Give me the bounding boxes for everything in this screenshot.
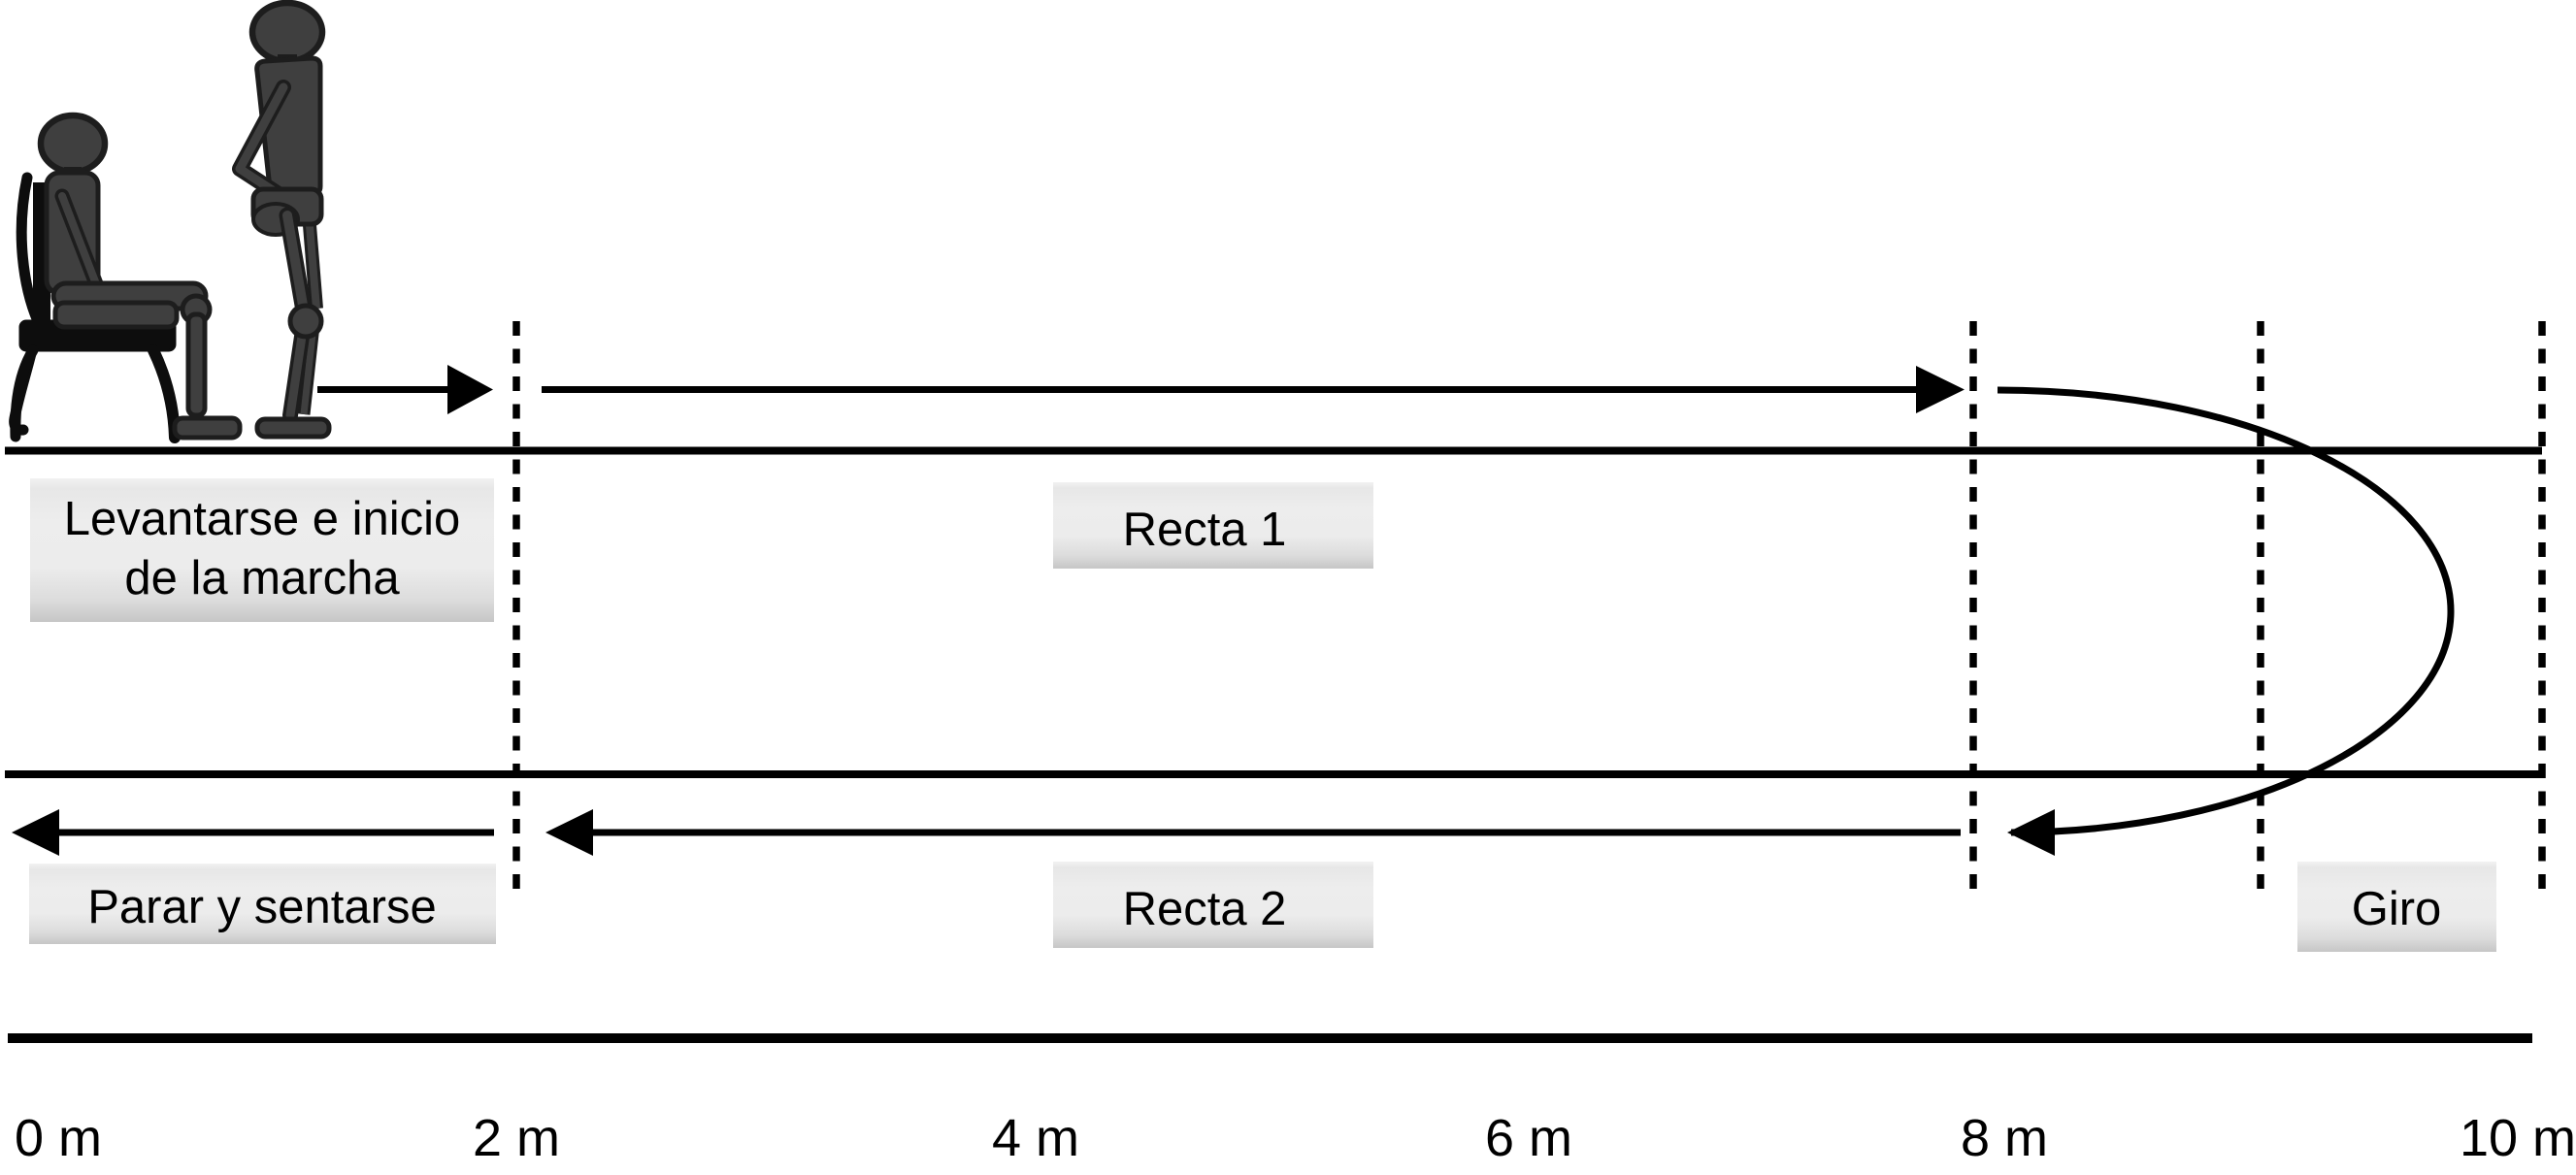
svg-text:Recta 1: Recta 1 bbox=[1123, 504, 1287, 556]
svg-text:Giro: Giro bbox=[2352, 883, 2442, 935]
svg-text:0 m: 0 m bbox=[15, 1109, 102, 1167]
svg-text:Recta 2: Recta 2 bbox=[1123, 883, 1287, 935]
svg-text:4 m: 4 m bbox=[992, 1109, 1079, 1167]
svg-text:10 m: 10 m bbox=[2460, 1109, 2576, 1167]
svg-text:8 m: 8 m bbox=[1961, 1109, 2048, 1167]
svg-text:2 m: 2 m bbox=[473, 1109, 560, 1167]
svg-text:Levantarse e inicio: Levantarse e inicio bbox=[64, 493, 461, 545]
svg-text:Parar y sentarse: Parar y sentarse bbox=[87, 881, 437, 933]
svg-text:de la marcha: de la marcha bbox=[124, 552, 400, 604]
svg-text:6 m: 6 m bbox=[1485, 1109, 1572, 1167]
